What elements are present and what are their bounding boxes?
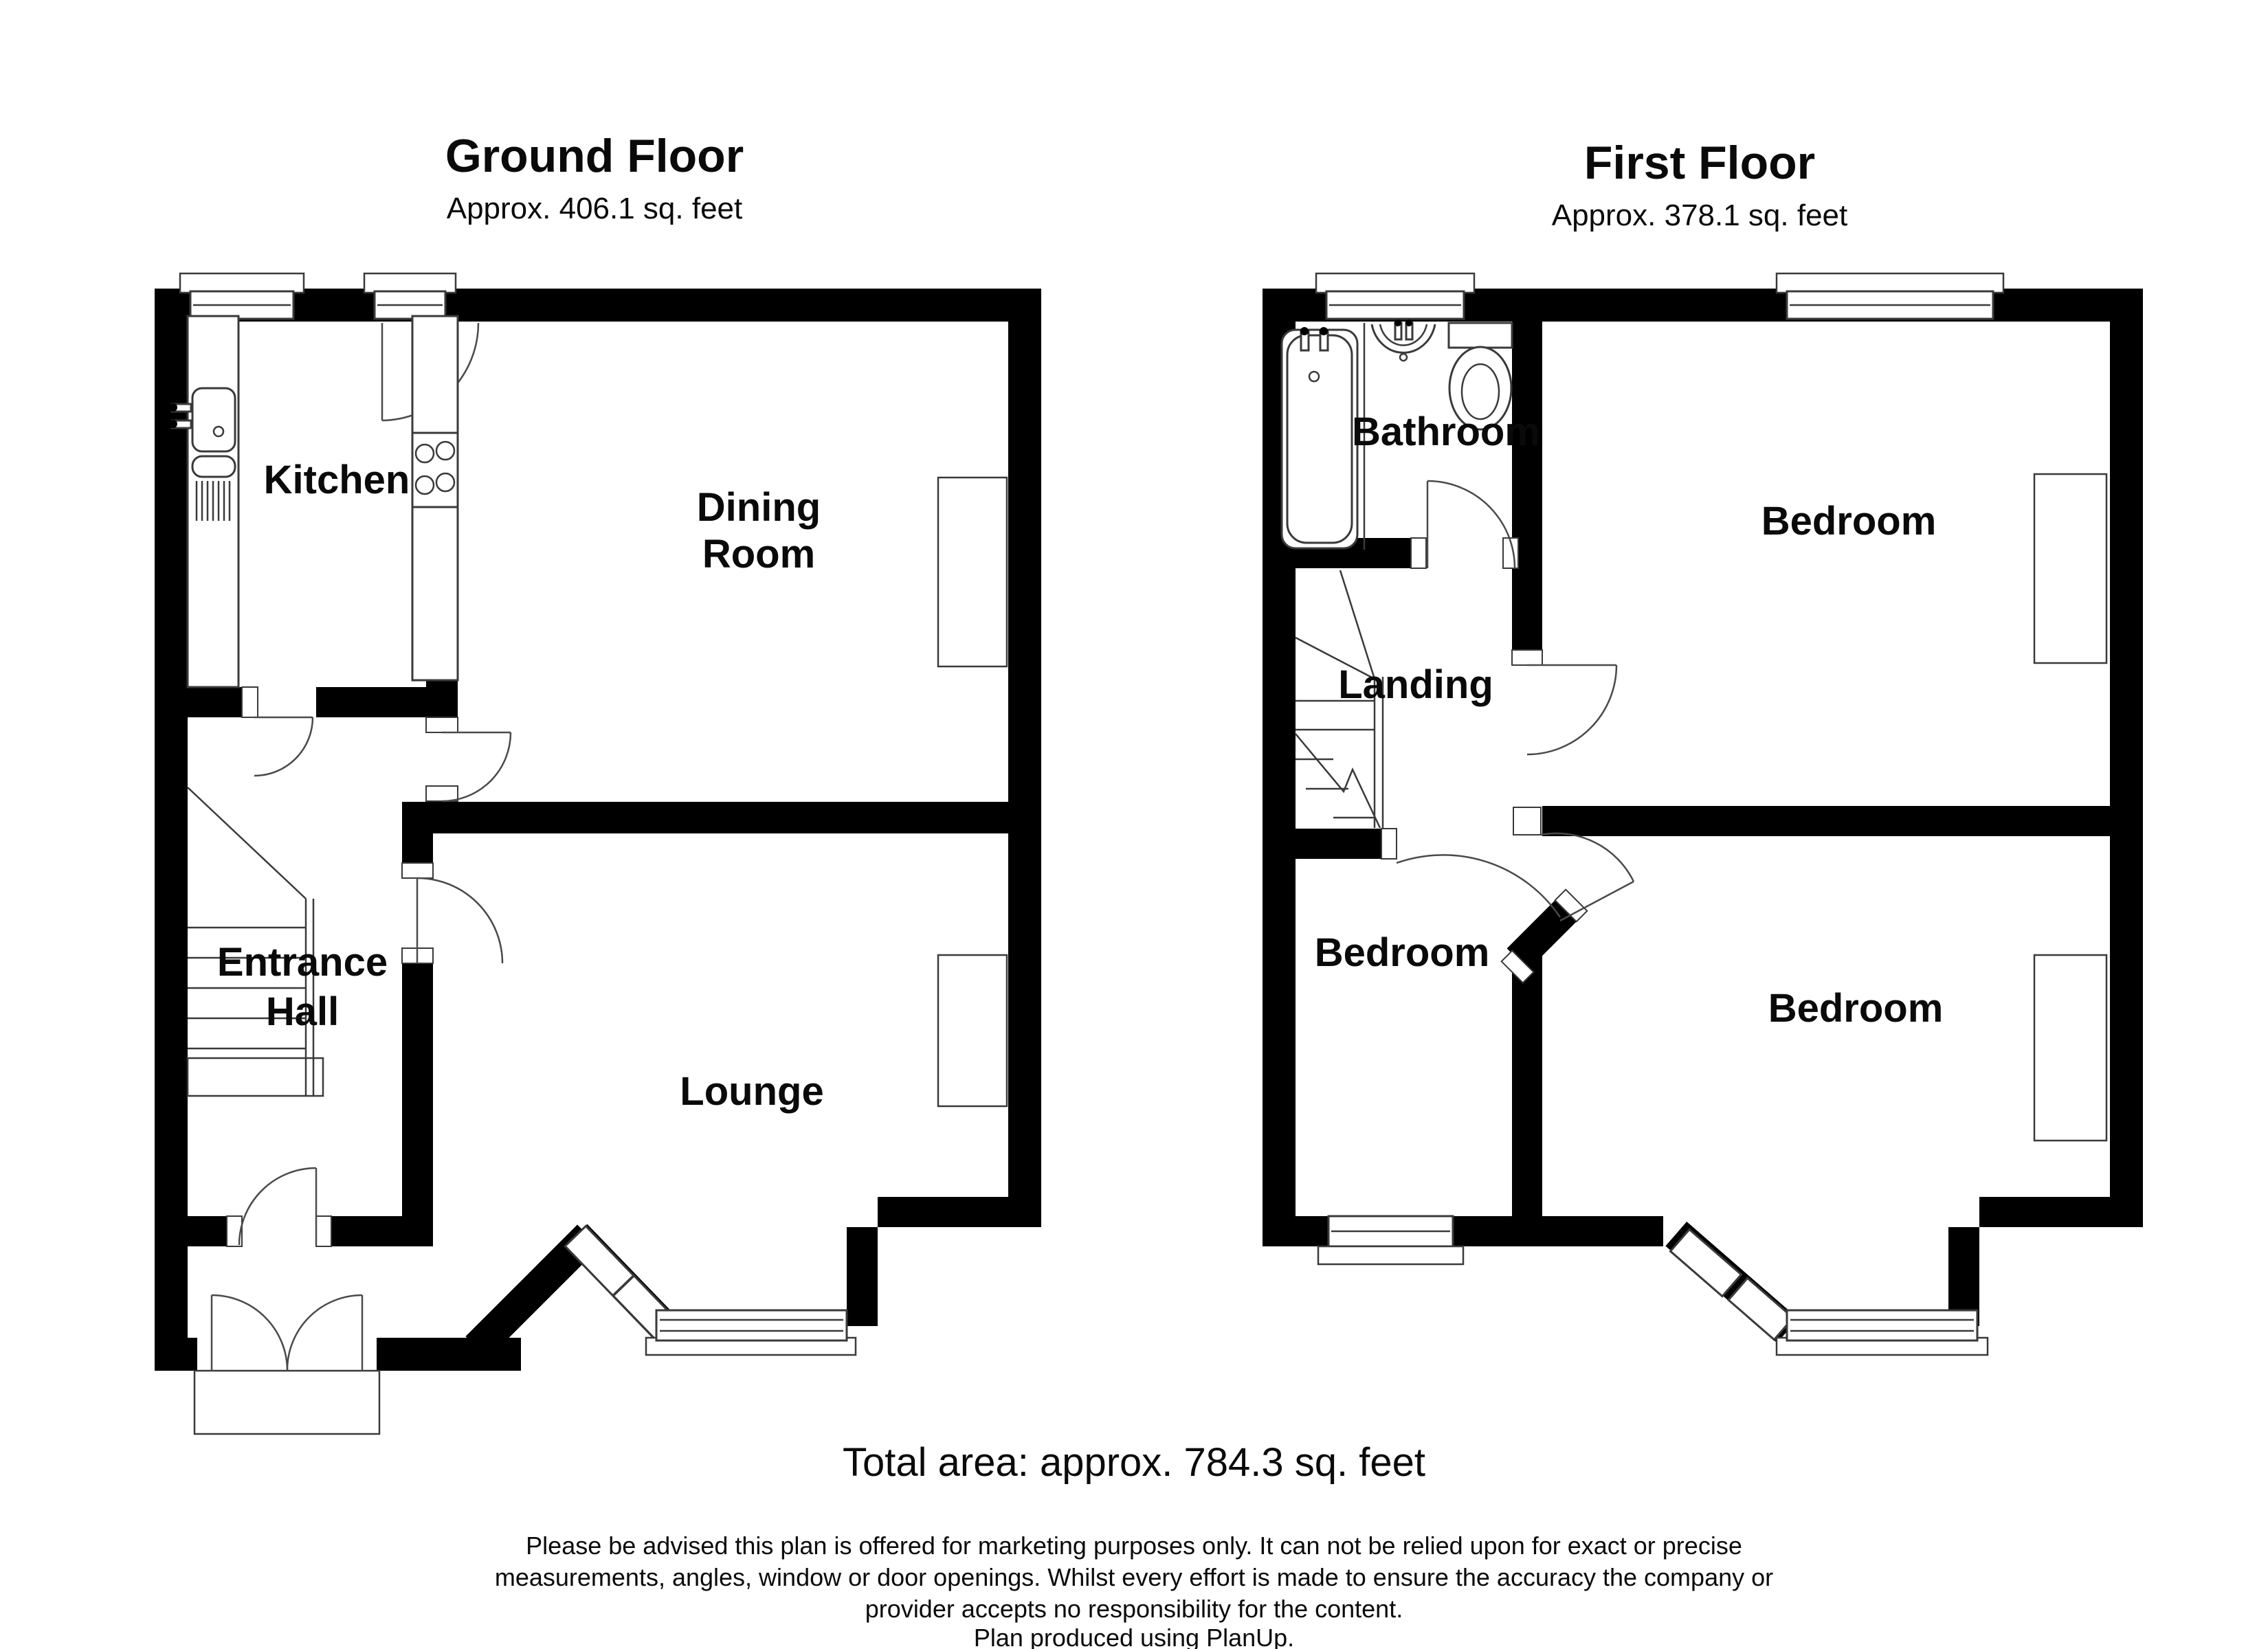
hall-lobby-door [227, 1168, 331, 1246]
kitchen-window [180, 273, 304, 319]
room-label-bedroom-front: Bedroom [1761, 499, 1937, 543]
room-label-hall-1: Entrance [217, 940, 388, 985]
lounge-bay-window [565, 1226, 856, 1355]
first-floor-plan: First Floor Approx. 378.1 sq. feet Bathr… [1263, 137, 2143, 1355]
room-label-bedroom-back: Bedroom [1768, 986, 1944, 1031]
first-floor-area: Approx. 378.1 sq. feet [1552, 199, 1848, 232]
dining-window [364, 273, 456, 319]
footer: Total area: approx. 784.3 sq. feet Pleas… [495, 1440, 1773, 1649]
wash-basin [1372, 319, 1435, 361]
bedroom-front-window [1777, 273, 2003, 319]
front-door [194, 1295, 379, 1434]
bathtub [1282, 327, 1357, 548]
room-label-bathroom: Bathroom [1352, 410, 1540, 454]
lounge-furniture [938, 955, 1007, 1106]
ground-floor-area: Approx. 406.1 sq. feet [447, 192, 743, 225]
kitchen-door [242, 687, 313, 776]
first-doors [1381, 481, 1634, 983]
disclaimer-line-3: provider accepts no responsibility for t… [865, 1595, 1403, 1623]
room-label-hall-2: Hall [266, 989, 339, 1034]
bedroom-back-bay-window [1670, 1229, 1988, 1355]
disclaimer-line-4: Plan produced using PlanUp. [974, 1624, 1294, 1649]
bathroom-window [1316, 273, 1474, 319]
bedroom-small-window [1318, 1216, 1463, 1264]
room-label-dining-2: Room [702, 532, 815, 576]
dining-furniture [938, 478, 1007, 666]
ground-floor-plan: Ground Floor Approx. 406.1 sq. feet Kitc… [155, 130, 1041, 1434]
total-area-text: Total area: approx. 784.3 sq. feet [843, 1440, 1425, 1485]
first-floor-title: First Floor [1584, 137, 1815, 189]
room-label-lounge: Lounge [680, 1069, 823, 1114]
room-label-kitchen: Kitchen [264, 458, 410, 502]
ground-walls [155, 289, 1041, 1371]
room-label-bedroom-small: Bedroom [1315, 930, 1490, 975]
room-label-landing: Landing [1338, 662, 1493, 707]
disclaimer-line-1: Please be advised this plan is offered f… [526, 1532, 1742, 1560]
floorplan-page: Ground Floor Approx. 406.1 sq. feet Kitc… [0, 0, 2268, 1649]
dining-door [426, 717, 511, 801]
floorplan-drawing: Ground Floor Approx. 406.1 sq. feet Kitc… [0, 0, 2268, 1649]
lounge-door [402, 863, 502, 963]
bathroom-door [1411, 481, 1518, 568]
bedroom-front-furniture [2034, 474, 2106, 663]
ground-floor-title: Ground Floor [445, 130, 744, 182]
bedroom-back-furniture [2034, 955, 2106, 1141]
room-label-dining-1: Dining [697, 485, 821, 530]
kitchen-hob [412, 316, 458, 680]
disclaimer-line-2: measurements, angles, window or door ope… [495, 1563, 1773, 1591]
